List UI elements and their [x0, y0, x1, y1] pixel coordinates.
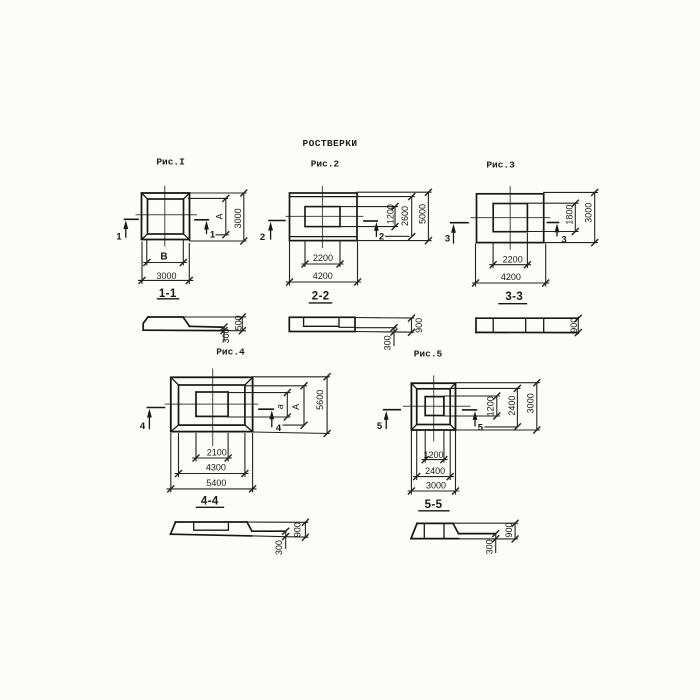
svg-text:2400: 2400	[507, 396, 517, 416]
svg-text:Рис.2: Рис.2	[311, 159, 340, 170]
svg-text:3-3: 3-3	[505, 291, 523, 303]
svg-text:a: a	[275, 404, 285, 409]
svg-text:500: 500	[233, 315, 243, 330]
svg-text:B: B	[160, 252, 167, 263]
svg-text:1800: 1800	[564, 205, 574, 225]
svg-text:300: 300	[484, 539, 494, 554]
svg-text:2100: 2100	[207, 447, 227, 457]
svg-text:1200: 1200	[385, 204, 395, 224]
svg-text:4200: 4200	[501, 272, 521, 282]
svg-text:3000: 3000	[426, 480, 446, 490]
svg-text:Рис.3: Рис.3	[486, 160, 515, 171]
svg-text:300: 300	[274, 540, 284, 555]
svg-text:300: 300	[221, 328, 231, 343]
svg-text:4200: 4200	[313, 271, 333, 281]
svg-text:РОСТВЕРКИ: РОСТВЕРКИ	[303, 138, 358, 149]
svg-text:900: 900	[414, 318, 424, 333]
svg-text:2200: 2200	[313, 253, 333, 263]
svg-text:3: 3	[561, 235, 566, 246]
svg-text:5-5: 5-5	[425, 499, 443, 511]
svg-text:1-1: 1-1	[159, 288, 177, 300]
svg-text:5: 5	[478, 423, 484, 434]
svg-text:3000: 3000	[526, 393, 536, 413]
svg-text:3000: 3000	[233, 208, 243, 228]
svg-text:900: 900	[569, 318, 579, 333]
svg-text:Рис.5: Рис.5	[414, 349, 443, 360]
svg-text:2200: 2200	[503, 254, 523, 264]
svg-text:3000: 3000	[156, 271, 176, 281]
svg-text:3000: 3000	[584, 203, 594, 223]
svg-text:900: 900	[504, 522, 514, 537]
svg-text:A: A	[291, 404, 301, 410]
svg-text:1200: 1200	[486, 396, 496, 416]
svg-text:Рис.4: Рис.4	[216, 347, 245, 358]
svg-text:3: 3	[445, 234, 450, 245]
svg-text:1: 1	[210, 230, 216, 241]
svg-text:300: 300	[383, 335, 393, 350]
svg-text:4: 4	[140, 421, 146, 432]
svg-text:900: 900	[292, 522, 302, 537]
svg-text:5000: 5000	[418, 204, 428, 224]
svg-text:2400: 2400	[425, 466, 445, 476]
svg-text:2600: 2600	[400, 206, 410, 226]
svg-text:1200: 1200	[423, 450, 443, 460]
svg-text:Рис.I: Рис.I	[156, 157, 185, 168]
svg-text:1: 1	[116, 232, 122, 243]
svg-text:2: 2	[260, 232, 265, 243]
svg-text:A: A	[215, 213, 225, 219]
svg-text:5400: 5400	[206, 478, 226, 488]
svg-text:4-4: 4-4	[201, 495, 219, 507]
svg-text:4300: 4300	[206, 463, 226, 473]
svg-text:5: 5	[377, 421, 383, 432]
svg-text:5600: 5600	[315, 390, 325, 410]
svg-text:2-2: 2-2	[312, 291, 330, 303]
